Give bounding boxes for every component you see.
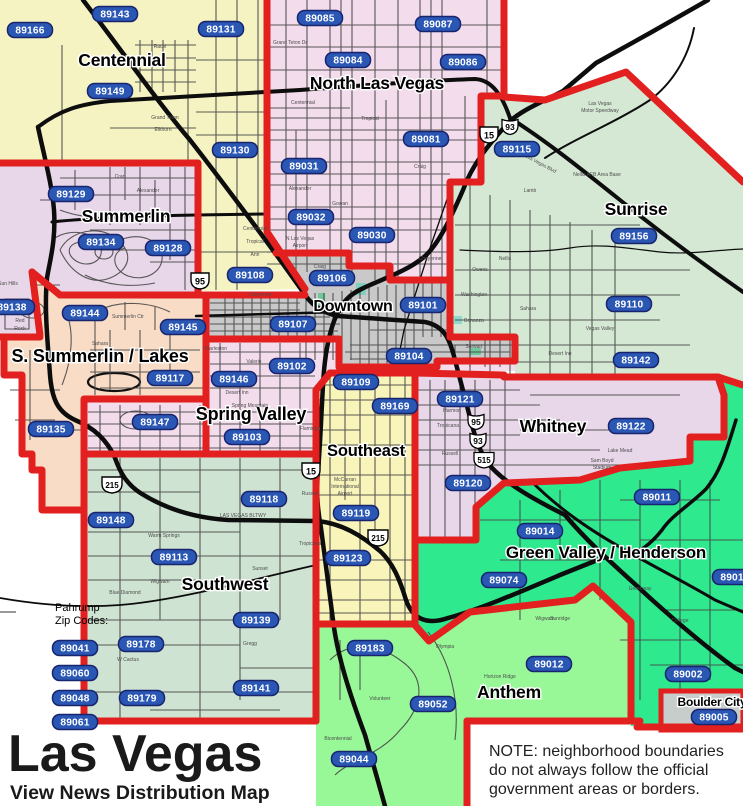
svg-text:89139: 89139	[241, 616, 270, 627]
svg-text:89147: 89147	[140, 418, 169, 429]
svg-text:Tropical: Tropical	[246, 239, 264, 245]
svg-text:89130: 89130	[220, 146, 249, 157]
svg-text:89141: 89141	[241, 684, 270, 695]
svg-text:College: College	[672, 618, 689, 624]
svg-text:89031: 89031	[289, 162, 318, 173]
svg-text:89113: 89113	[160, 553, 189, 564]
svg-text:Flamingo: Flamingo	[300, 426, 321, 432]
svg-text:Nellis: Nellis	[499, 256, 512, 262]
svg-text:Summerlin: Summerlin	[82, 206, 171, 226]
svg-text:89085: 89085	[305, 14, 334, 25]
svg-text:Vegas Valley: Vegas Valley	[586, 326, 615, 332]
svg-text:89148: 89148	[96, 516, 125, 527]
svg-text:89179: 89179	[127, 694, 156, 705]
svg-text:Alexander: Alexander	[137, 188, 160, 194]
svg-text:government areas or borders.: government areas or borders.	[489, 781, 700, 798]
svg-text:Spring Mountain: Spring Mountain	[232, 403, 269, 409]
svg-text:89110: 89110	[615, 300, 644, 311]
svg-text:Volunteer: Volunteer	[369, 696, 390, 702]
svg-text:Craig: Craig	[414, 164, 426, 170]
svg-text:Olympia: Olympia	[436, 644, 455, 650]
svg-text:View News Distribution Map: View News Distribution Map	[10, 782, 270, 804]
svg-text:Whitney: Whitney	[520, 416, 587, 436]
svg-text:89120: 89120	[453, 479, 482, 490]
svg-text:Harmon: Harmon	[443, 408, 461, 414]
svg-text:Blue Diamond: Blue Diamond	[109, 590, 141, 596]
svg-text:North Las Vegas: North Las Vegas	[310, 73, 445, 93]
svg-text:89183: 89183	[355, 644, 384, 655]
svg-text:Nellis AFB Area Base: Nellis AFB Area Base	[573, 172, 621, 178]
svg-text:Desert Inn: Desert Inn	[225, 390, 248, 396]
svg-text:89119: 89119	[342, 509, 371, 520]
svg-text:Bicentennial: Bicentennial	[324, 736, 351, 742]
svg-text:89131: 89131	[206, 25, 235, 36]
svg-text:89032: 89032	[296, 213, 325, 224]
svg-text:W Cactus: W Cactus	[117, 657, 139, 663]
svg-text:do not always follow the offic: do not always follow the official	[489, 762, 708, 779]
svg-text:Russell: Russell	[302, 491, 318, 497]
svg-text:89074: 89074	[489, 576, 518, 587]
svg-text:Tropicana: Tropicana	[437, 423, 459, 429]
svg-text:Southwest: Southwest	[182, 574, 269, 594]
svg-text:Wigwam: Wigwam	[150, 579, 169, 585]
svg-text:Warm Springs: Warm Springs	[148, 533, 180, 539]
svg-text:Zip Codes:: Zip Codes:	[55, 615, 108, 627]
svg-text:89109: 89109	[341, 378, 370, 389]
svg-text:89011: 89011	[643, 493, 672, 504]
svg-text:89144: 89144	[70, 309, 99, 320]
svg-text:89087: 89087	[423, 20, 452, 31]
svg-text:Tropical: Tropical	[361, 116, 379, 122]
svg-text:NOTE: neighborhood boundaries: NOTE: neighborhood boundaries	[489, 743, 724, 760]
svg-text:89166: 89166	[15, 26, 44, 37]
svg-text:89103: 89103	[232, 433, 261, 444]
svg-text:Tropicana: Tropicana	[299, 541, 321, 547]
svg-text:Stewart: Stewart	[466, 344, 484, 350]
svg-text:89122: 89122	[616, 422, 645, 433]
svg-text:Anthem: Anthem	[477, 682, 541, 702]
svg-text:Sun Hills: Sun Hills	[0, 281, 18, 287]
svg-text:89014: 89014	[525, 527, 554, 538]
svg-text:Lamb: Lamb	[524, 188, 537, 194]
svg-text:Gowan: Gowan	[332, 201, 348, 207]
svg-text:Red: Red	[15, 318, 24, 324]
svg-text:Sahara: Sahara	[520, 306, 536, 312]
svg-text:89156: 89156	[619, 232, 648, 243]
svg-text:Gregg: Gregg	[243, 641, 257, 647]
svg-text:Airport: Airport	[338, 491, 353, 497]
svg-text:89108: 89108	[235, 271, 264, 282]
svg-text:89118: 89118	[250, 495, 279, 506]
svg-text:89178: 89178	[126, 640, 155, 651]
svg-text:Owens: Owens	[472, 267, 488, 273]
svg-text:Sahara: Sahara	[92, 341, 108, 347]
svg-text:Las Vegas: Las Vegas	[588, 101, 612, 107]
svg-text:Valerie: Valerie	[246, 359, 261, 365]
svg-text:Russell: Russell	[442, 451, 458, 457]
svg-text:International: International	[331, 484, 359, 490]
svg-text:Desert Inn: Desert Inn	[548, 351, 571, 357]
svg-text:Green Valley / Henderson: Green Valley / Henderson	[506, 543, 706, 562]
svg-text:89106: 89106	[317, 274, 346, 285]
svg-text:89135: 89135	[36, 425, 65, 436]
svg-text:89104: 89104	[394, 352, 423, 363]
svg-text:Alexander: Alexander	[289, 186, 312, 192]
svg-text:Summerlin Ctr: Summerlin Ctr	[112, 314, 144, 320]
svg-text:Horizon Ridge: Horizon Ridge	[484, 674, 516, 680]
svg-text:Wigwam: Wigwam	[535, 616, 554, 622]
svg-text:89115: 89115	[503, 145, 532, 156]
svg-text:89143: 89143	[100, 10, 129, 21]
svg-text:89048: 89048	[60, 694, 89, 705]
svg-text:Sunrise: Sunrise	[605, 199, 668, 219]
svg-text:Cheyenne: Cheyenne	[419, 256, 442, 262]
svg-text:515: 515	[477, 456, 491, 465]
svg-text:15: 15	[484, 130, 494, 140]
svg-text:95: 95	[471, 417, 481, 427]
svg-text:Grand Teton: Grand Teton	[151, 115, 179, 121]
svg-text:Racel: Racel	[154, 44, 167, 50]
svg-text:Grand Teton Dr: Grand Teton Dr	[273, 40, 307, 46]
svg-text:Rock: Rock	[14, 326, 26, 332]
svg-text:89015: 89015	[720, 573, 743, 584]
svg-text:89052: 89052	[418, 700, 447, 711]
svg-text:89146: 89146	[219, 375, 248, 386]
svg-text:Centennial: Centennial	[78, 50, 165, 70]
svg-text:89117: 89117	[156, 374, 185, 385]
svg-text:89123: 89123	[333, 554, 362, 565]
svg-text:Stadium: Stadium	[593, 465, 611, 471]
svg-text:89101: 89101	[408, 301, 437, 312]
svg-text:Centennial: Centennial	[291, 100, 315, 106]
svg-text:Elkhorn: Elkhorn	[155, 127, 172, 133]
svg-text:89030: 89030	[357, 231, 386, 242]
svg-text:Cheyenne: Cheyenne	[249, 292, 272, 298]
svg-text:Centennial: Centennial	[243, 226, 267, 232]
svg-text:Boulder City: Boulder City	[678, 695, 743, 709]
svg-text:95: 95	[195, 276, 205, 286]
svg-text:215: 215	[371, 534, 385, 543]
svg-text:Lake Mead: Lake Mead	[608, 448, 633, 454]
svg-text:S. Summerlin / Lakes: S. Summerlin / Lakes	[11, 346, 188, 366]
svg-text:Charleston: Charleston	[203, 346, 227, 352]
svg-text:215: 215	[105, 481, 119, 490]
svg-text:N Las Vegas: N Las Vegas	[286, 236, 315, 242]
svg-text:Sam Boyd: Sam Boyd	[590, 458, 613, 464]
svg-text:89142: 89142	[621, 356, 650, 367]
svg-text:Las Vegas: Las Vegas	[8, 725, 262, 783]
svg-text:Sunset: Sunset	[252, 566, 268, 572]
svg-text:89121: 89121	[445, 395, 474, 406]
svg-text:LAS VEGAS BLTWY: LAS VEGAS BLTWY	[220, 513, 267, 519]
svg-text:93: 93	[505, 122, 515, 132]
svg-text:93: 93	[473, 436, 483, 446]
svg-text:Cran: Cran	[115, 174, 126, 180]
svg-text:89169: 89169	[380, 402, 409, 413]
svg-text:Greenway: Greenway	[629, 586, 652, 592]
svg-text:Airport: Airport	[293, 243, 308, 249]
svg-text:89129: 89129	[56, 190, 85, 201]
svg-text:89134: 89134	[86, 238, 115, 249]
svg-text:89060: 89060	[60, 669, 89, 680]
svg-text:Washington: Washington	[461, 292, 487, 298]
svg-text:89149: 89149	[95, 87, 124, 98]
svg-text:89044: 89044	[339, 755, 368, 766]
svg-text:89084: 89084	[333, 56, 362, 67]
svg-text:89081: 89081	[411, 135, 440, 146]
svg-text:89041: 89041	[60, 644, 89, 655]
svg-text:Downtown: Downtown	[313, 298, 392, 315]
svg-text:89128: 89128	[153, 244, 182, 255]
svg-text:89002: 89002	[673, 670, 702, 681]
svg-text:89145: 89145	[168, 323, 197, 334]
svg-text:89107: 89107	[278, 320, 307, 331]
svg-text:89005: 89005	[699, 713, 728, 724]
svg-text:89012: 89012	[534, 660, 563, 671]
svg-text:15: 15	[306, 466, 316, 476]
svg-text:Bonanza: Bonanza	[464, 318, 484, 324]
svg-text:Craig: Craig	[314, 264, 326, 270]
svg-text:89138: 89138	[0, 303, 27, 314]
svg-text:McCarran: McCarran	[334, 477, 356, 483]
svg-text:Southeast: Southeast	[327, 442, 406, 460]
svg-text:Motor Speedway: Motor Speedway	[581, 108, 619, 114]
svg-text:89102: 89102	[277, 362, 306, 373]
svg-text:Pahrump: Pahrump	[55, 602, 100, 614]
svg-text:Ann: Ann	[251, 252, 260, 258]
svg-text:89086: 89086	[448, 58, 477, 69]
